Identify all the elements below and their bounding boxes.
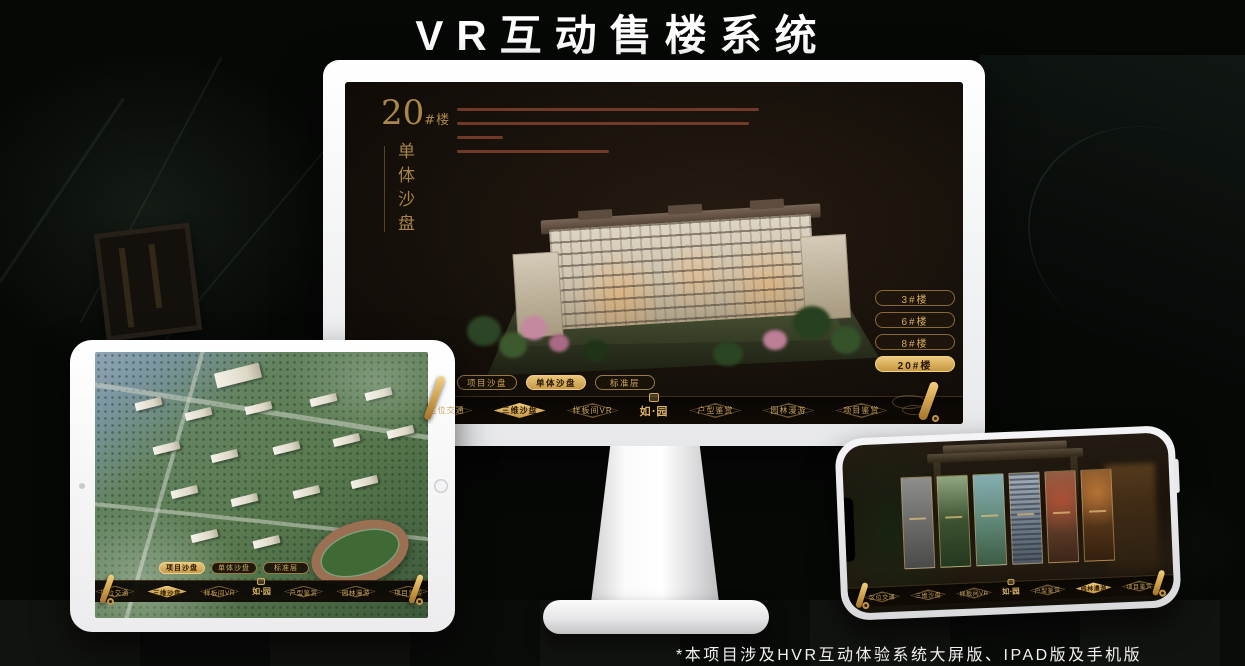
floor-selector: 3#楼 6#楼 8#楼 20#楼: [875, 290, 955, 372]
monitor-stand-neck: [585, 446, 725, 606]
tablet-screen: 项目沙盘 单体沙盘 标准层 区位交通 三维沙盘 样板间VR: [95, 352, 428, 618]
phone-device: 区位交通 三维沙盘 样板间VR 如·园 户型鉴赏: [834, 425, 1181, 621]
tab-standard-floor[interactable]: 标准层: [263, 562, 309, 574]
nav-item-3d-sandtable[interactable]: 三维沙盘: [910, 589, 946, 601]
description-line: [457, 122, 749, 125]
nav-item-3d-sandtable[interactable]: 三维沙盘: [147, 586, 186, 598]
seal-icon: [649, 393, 659, 402]
gallery-panel-courtyard[interactable]: [900, 476, 935, 569]
building-number-suffix: #楼: [424, 113, 450, 128]
tab-project-sandtable[interactable]: 项目沙盘: [159, 562, 205, 574]
monitor-stand-base: [543, 600, 769, 634]
footnote-text: *本项目涉及HVR互动体验系统大屏版、IPAD版及手机版: [676, 641, 1142, 665]
tablet-navbar: 区位交通 三维沙盘 样板间VR 如·园 户型鉴赏: [95, 580, 428, 602]
tab-project-sandtable[interactable]: 项目沙盘: [457, 375, 517, 390]
scene-gallery: [900, 469, 1115, 570]
blossom-tree: [549, 334, 569, 352]
seal-icon: [257, 578, 265, 585]
floor-button-8[interactable]: 8#楼: [875, 334, 955, 350]
model-tree: [713, 342, 743, 366]
nav-item-project-gallery[interactable]: 项目鉴赏: [389, 586, 428, 598]
nav-item-garden-roam[interactable]: 园林漫游: [1075, 582, 1111, 594]
tablet-home-button[interactable]: [434, 479, 448, 493]
nav-item-3d-sandtable[interactable]: 三维沙盘: [494, 403, 546, 418]
sandtable-mode-tabs: 项目沙盘 单体沙盘 标准层: [457, 375, 655, 390]
heading-divider: [384, 146, 385, 232]
brand-logo: 如·园: [1002, 579, 1020, 598]
scroll-handle-icon[interactable]: [857, 582, 867, 608]
phone-side-button[interactable]: [1173, 459, 1179, 493]
phone-screen: 区位交通 三维沙盘 样板间VR 如·园 户型鉴赏: [842, 432, 1175, 614]
model-tree: [831, 326, 861, 354]
nav-item-floorplan-gallery[interactable]: 户型鉴赏: [689, 403, 741, 418]
model-tree: [583, 340, 609, 362]
scroll-cap: [416, 598, 423, 605]
description-line: [457, 136, 503, 139]
page-title: VR互动售楼系统: [0, 2, 1245, 63]
scroll-handle-icon[interactable]: [922, 381, 937, 421]
building-facade: [549, 214, 817, 330]
tablet-camera-icon: [79, 483, 85, 489]
floor-button-20[interactable]: 20#楼: [875, 356, 955, 372]
blossom-tree: [521, 316, 547, 340]
brand-logo: 如·园: [640, 393, 669, 419]
gallery-panel-building[interactable]: [1008, 472, 1043, 565]
brand-logo: 如·园: [252, 578, 271, 597]
promo-canvas: VR互动售楼系统 20#楼 单体沙盘: [0, 0, 1245, 666]
scroll-cap: [1159, 589, 1166, 596]
scroll-handle-icon[interactable]: [1154, 570, 1164, 596]
scroll-handle-icon[interactable]: [411, 574, 421, 604]
gallery-panel-garden[interactable]: [936, 475, 971, 568]
model-tree: [499, 332, 527, 358]
floor-button-3[interactable]: 3#楼: [875, 290, 955, 306]
scroll-handle-icon[interactable]: [102, 574, 112, 604]
nav-item-floorplan-gallery[interactable]: 户型鉴赏: [284, 586, 323, 598]
section-subtitle-vertical: 单体沙盘: [392, 142, 417, 238]
nav-item-floorplan-gallery[interactable]: 户型鉴赏: [1029, 584, 1065, 596]
gallery-panel-autumn[interactable]: [1044, 470, 1079, 563]
sandtable-mode-tabs: 项目沙盘 单体沙盘 标准层: [159, 562, 309, 574]
nav-item-garden-roam[interactable]: 园林漫游: [336, 586, 375, 598]
gallery-panel-landscape[interactable]: [972, 473, 1007, 566]
residential-building: [517, 182, 844, 331]
model-tree: [467, 316, 501, 346]
nav-item-project-gallery[interactable]: 项目鉴赏: [835, 403, 887, 418]
building-number: 20: [381, 93, 424, 133]
tab-single-sandtable[interactable]: 单体沙盘: [526, 375, 586, 390]
frame-glyph-column: [148, 244, 162, 308]
nav-item-model-room-vr[interactable]: 样板间VR: [567, 403, 619, 418]
nav-item-garden-roam[interactable]: 园林漫游: [762, 403, 814, 418]
background-picture-frame: [94, 223, 202, 342]
scroll-cap: [107, 598, 114, 605]
building-number-heading: 20#楼: [381, 96, 450, 130]
nav-item-location-traffic[interactable]: 区位交通: [864, 591, 900, 603]
frame-glyph-column: [119, 248, 135, 328]
tab-single-sandtable[interactable]: 单体沙盘: [211, 562, 257, 574]
model-tree: [793, 306, 831, 340]
blossom-tree: [763, 330, 787, 350]
description-line: [457, 108, 759, 111]
floor-button-6[interactable]: 6#楼: [875, 312, 955, 328]
seal-icon: [1007, 579, 1014, 585]
tab-standard-floor[interactable]: 标准层: [595, 375, 655, 390]
scroll-handle-icon[interactable]: [429, 375, 440, 421]
gallery-panel-interior[interactable]: [1080, 469, 1115, 562]
tablet-device: 项目沙盘 单体沙盘 标准层 区位交通 三维沙盘 样板间VR: [70, 340, 455, 632]
building-3d-model[interactable]: [463, 140, 893, 380]
scroll-cap: [932, 415, 939, 422]
nav-item-model-room-vr[interactable]: 样板间VR: [956, 587, 992, 599]
nav-item-model-room-vr[interactable]: 样板间VR: [200, 586, 239, 598]
